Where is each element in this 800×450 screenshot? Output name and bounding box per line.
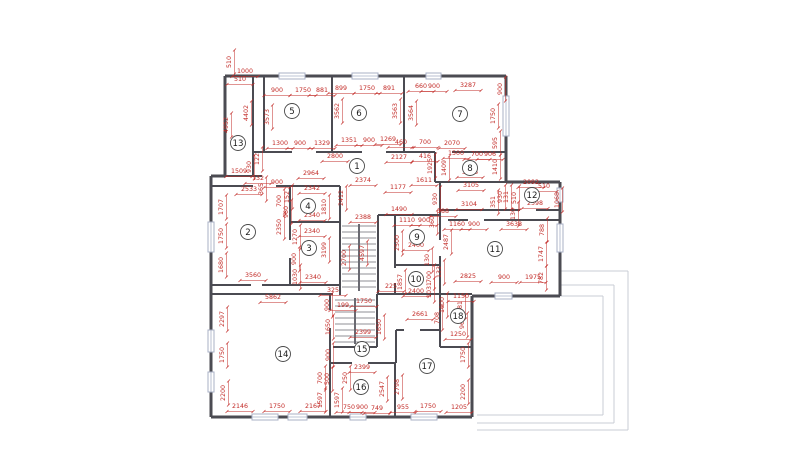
dimension-label: 1351 (341, 137, 357, 144)
dimension-label: 900 (498, 274, 510, 281)
dimension-label: 1205 (451, 404, 467, 411)
dimension-label: 2070 (444, 140, 460, 147)
dimension-label: 700 (317, 372, 324, 384)
dimension-label: 2374 (355, 177, 371, 184)
dimension-label: 2547 (379, 381, 386, 397)
room-number: 18 (453, 312, 464, 322)
dimension-label: 2350 (276, 219, 283, 235)
dimension-label: 930 (246, 161, 253, 173)
dimension-label: 900 (294, 140, 306, 147)
dimension-label: 2340 (305, 274, 321, 281)
dimension-label: 900 (428, 83, 440, 90)
dimension-label: 4597 (359, 245, 366, 261)
dimension-label: 749 (371, 405, 383, 412)
room-number: 14 (278, 350, 289, 360)
dimension-label: 5862 (265, 294, 281, 301)
dimension-label: 510 (234, 76, 246, 83)
dimension-label: 1750 (269, 403, 285, 410)
dimension-label: 3564 (408, 105, 415, 121)
dimension-label: 900 (468, 221, 480, 228)
dimension-label: 3105 (463, 182, 479, 189)
dimension-label: 1750 (490, 108, 497, 124)
room-number: 9 (414, 233, 419, 243)
dimension-label: 1750 (219, 347, 226, 363)
dimension-label: 1597 (334, 392, 341, 408)
dimension-label: 2412 (338, 190, 345, 206)
dimension-label: 510 (511, 192, 518, 204)
dimension-label: 782 (538, 272, 545, 284)
dimension-label: 1068 (554, 192, 561, 208)
dimension-label: 2092 (523, 179, 539, 186)
dimension-label: 3563 (392, 103, 399, 119)
dimension-label: 2399 (355, 329, 371, 336)
dimension-label: 2700 (341, 250, 348, 266)
dimension-label: 4952 (223, 117, 230, 133)
room-number: 16 (356, 383, 367, 393)
dimension-label: 3104 (461, 201, 477, 208)
dimension-label: 1810 (321, 199, 328, 215)
room-number: 12 (527, 191, 538, 201)
dimension-label: 906 (484, 151, 496, 158)
dimension-label: 900 (418, 217, 430, 224)
dimension-label: 1857 (397, 274, 404, 290)
dimension-label: 4402 (243, 105, 250, 121)
dimension-label: 700 (276, 195, 283, 207)
room-number: 17 (422, 362, 433, 372)
dimension-label: 3573 (264, 109, 271, 125)
dimension-label: 595 (492, 137, 499, 149)
dimension-label: 1300 (272, 140, 288, 147)
dimension-label: 351 (490, 196, 497, 208)
dimension-label: 900 (325, 349, 332, 361)
dimension-label: 500 (324, 373, 331, 385)
dimension-label: 360 (429, 216, 436, 228)
dimension-label: 2399 (354, 364, 370, 371)
dimension-label: 891 (383, 85, 395, 92)
dimension-label: 1650 (325, 319, 332, 335)
dimension-label: 3560 (245, 272, 261, 279)
dimension-label: 1269 (380, 136, 396, 143)
room-number: 2 (245, 228, 250, 238)
dimension-label: 2388 (355, 214, 371, 221)
dimension-label: 225 (385, 283, 397, 290)
dimension-label: 1110 (399, 217, 415, 224)
dimension-label: 1611 (416, 177, 432, 184)
room-number: 6 (356, 109, 361, 119)
dimension-label: 1250 (450, 331, 466, 338)
dimension-label: 899 (335, 85, 347, 92)
dimension-label: 2297 (219, 311, 226, 327)
dimension-label: 788 (539, 224, 546, 236)
dimension-label: 3287 (460, 82, 476, 89)
dimension-label: 1750 (356, 298, 372, 305)
dimension-label: 132 (252, 175, 264, 182)
dimension-label: 1490 (391, 206, 407, 213)
dimension-label: 1925 (427, 158, 434, 174)
dimension-label: 700 (419, 139, 431, 146)
dimension-label: 3638 (506, 221, 522, 228)
dimension-label: 708 (434, 312, 441, 324)
dimension-label: 3199 (321, 242, 328, 258)
dimension-label: 1270 (292, 229, 299, 245)
room-number: 1 (354, 162, 359, 172)
dimension-label: 900 (356, 404, 368, 411)
room-number: 4 (305, 202, 310, 212)
dimension-label: 2200 (220, 385, 227, 401)
dimension-label: 1750 (460, 347, 467, 363)
dimension-label: 250 (342, 372, 349, 384)
dimension-label: 1680 (218, 257, 225, 273)
dimension-label: 130 (510, 208, 517, 220)
dimension-label: 131 (503, 191, 510, 203)
dimension-label: 365 (258, 183, 265, 195)
dimension-label: 130 (424, 254, 431, 266)
dimension-label: 2200 (460, 384, 467, 400)
floor-plan-page: 1000510510495244029301221509132900365253… (0, 0, 800, 450)
dimension-label: 2487 (443, 234, 450, 250)
room-number: 10 (411, 275, 422, 285)
dimension-label: 1750 (359, 85, 375, 92)
dimension-label: 900 (497, 83, 504, 95)
dimension-label: 1509 (231, 168, 247, 175)
dimension-label: 750 (343, 404, 355, 411)
room-number: 3 (306, 244, 311, 254)
dimension-label: 3562 (334, 103, 341, 119)
dimension-label: 2533 (241, 186, 257, 193)
room-number: 8 (467, 164, 472, 174)
dimension-label: 1329 (314, 140, 330, 147)
room-number: 15 (357, 345, 368, 355)
dimension-label: 955 (397, 404, 409, 411)
dimension-label: 1750 (420, 403, 436, 410)
dimension-label: 2340 (304, 228, 320, 235)
dimension-label: 900 (271, 87, 283, 94)
dimension-label: 1409 (441, 160, 448, 176)
dimension-label: 325 (327, 287, 339, 294)
room-number: 11 (490, 245, 501, 255)
dimension-label: 2146 (232, 403, 248, 410)
dimension-label: 1750 (218, 228, 225, 244)
dimension-label: 881 (316, 87, 328, 94)
dimension-label: 2500 (394, 235, 401, 251)
dimension-label: 1030 (292, 269, 299, 285)
dimension-label: 1031 (426, 282, 433, 298)
dimension-label: 2342 (304, 185, 320, 192)
dimension-label: 199 (337, 302, 349, 309)
dimension-label: 2798 (394, 379, 401, 395)
dimension-label: 1707 (218, 199, 225, 215)
dimension-label: 1177 (390, 184, 406, 191)
dimension-label: 700 (471, 151, 483, 158)
floor-plan-canvas: 1000510510495244029301221509132900365253… (0, 0, 800, 450)
dimension-label: 2964 (303, 170, 319, 177)
room-number: 7 (457, 110, 462, 120)
dimension-label: 900 (324, 299, 331, 311)
dimension-label: 1160 (449, 221, 465, 228)
dimension-label: 2127 (391, 154, 407, 161)
dimension-label: 900 (271, 179, 283, 186)
dimension-label: 2825 (460, 273, 476, 280)
dimension-label: 1750 (295, 87, 311, 94)
dimension-label: 2800 (327, 153, 343, 160)
dimension-label: 900 (291, 253, 298, 265)
dimension-label: 510 (538, 183, 550, 190)
dimension-label: 930 (432, 193, 439, 205)
dimension-label: 960 (283, 206, 290, 218)
dimension-label: 1410 (492, 159, 499, 175)
dimension-label: 700 (426, 271, 433, 283)
dimension-label: 1597 (317, 392, 324, 408)
dimension-label: 1500 (448, 150, 464, 157)
dimension-label: 122 (254, 153, 261, 165)
dimension-label: 1650 (376, 319, 383, 335)
dimension-label: 2400 (408, 288, 424, 295)
room-number: 13 (233, 139, 244, 149)
dimension-label: 510 (226, 56, 233, 68)
dimension-label: 900 (363, 137, 375, 144)
dimension-label: 2661 (412, 311, 428, 318)
dimension-label: 1747 (538, 246, 545, 262)
room-number: 5 (289, 107, 294, 117)
dimension-label: 660 (415, 83, 427, 90)
dimension-label: 460 (395, 139, 407, 146)
dimension-label: 133 (436, 266, 443, 278)
dimension-label: 1000 (237, 68, 253, 75)
